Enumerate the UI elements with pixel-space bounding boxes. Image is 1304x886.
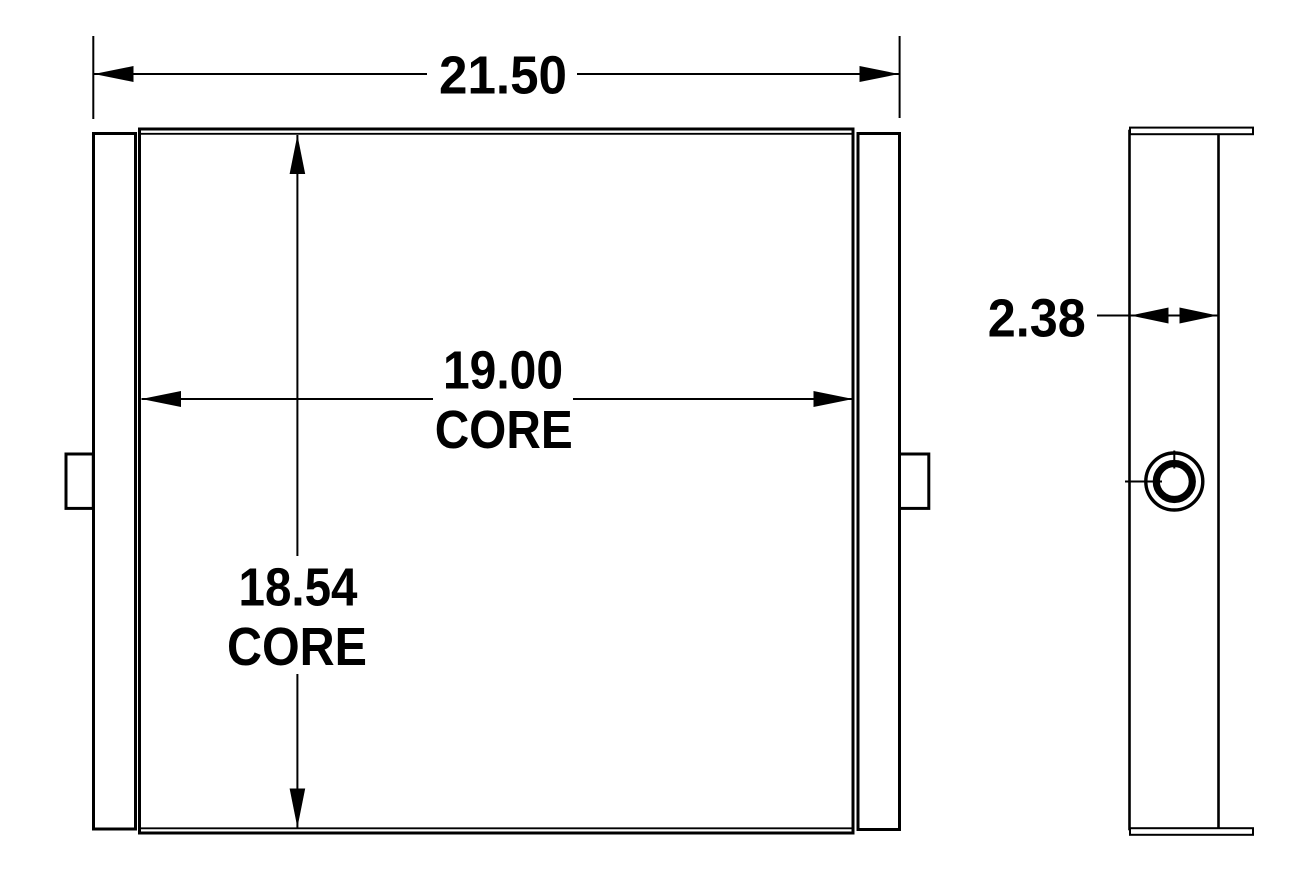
svg-text:19.00: 19.00 [443, 341, 563, 401]
svg-text:CORE: CORE [227, 617, 367, 677]
svg-text:21.50: 21.50 [439, 46, 567, 106]
svg-text:18.54: 18.54 [239, 558, 358, 618]
svg-text:2.38: 2.38 [988, 289, 1086, 349]
svg-text:CORE: CORE [435, 400, 573, 460]
